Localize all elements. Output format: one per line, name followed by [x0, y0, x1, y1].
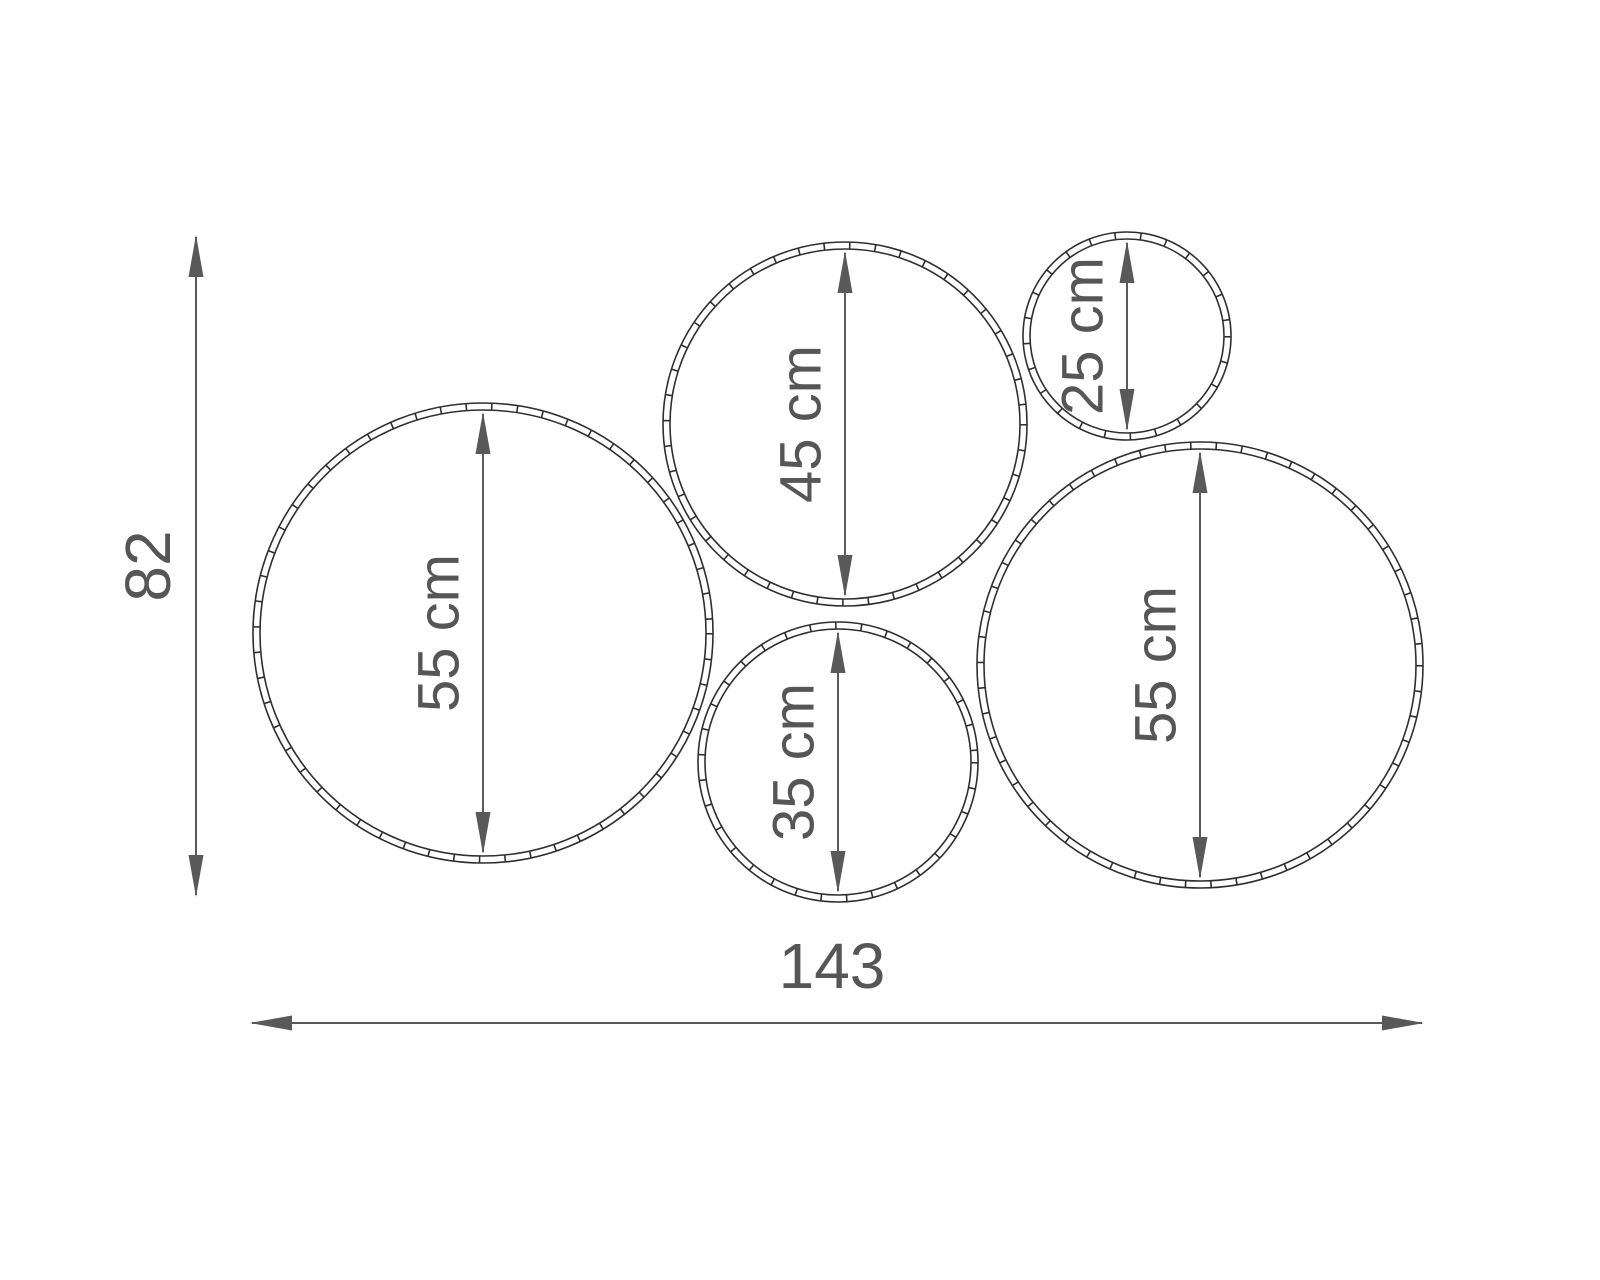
circle-25-small-label: 25 cm [1051, 257, 1116, 415]
overall-height-arrowhead-bottom [189, 855, 204, 897]
circle-35-bottom-label: 35 cm [762, 683, 827, 841]
overall-height-arrowhead-top [189, 235, 204, 277]
circle-35-bottom: 35 cm [698, 622, 978, 902]
overall-width-arrowhead-left [250, 1016, 292, 1031]
dimension-drawing-page: 55 cm45 cm25 cm35 cm55 cm82143 [0, 0, 1600, 1280]
overall-width-label: 143 [779, 930, 886, 1002]
overall-width-dimension: 143 [250, 930, 1424, 1031]
overall-width-arrowhead-right [1382, 1016, 1424, 1031]
circle-45-top-label: 45 cm [769, 345, 834, 503]
circle-35-bottom-arrowhead-top [831, 631, 846, 673]
circle-35-bottom-arrowhead-bottom [831, 851, 846, 893]
circle-55-right-arrowhead-top [1193, 451, 1208, 493]
drawing-canvas: 55 cm45 cm25 cm35 cm55 cm82143 [0, 0, 1600, 1280]
circle-25-small: 25 cm [1023, 232, 1231, 440]
circle-45-top: 45 cm [663, 242, 1027, 606]
circle-55-left-arrowhead-top [476, 412, 491, 454]
circle-55-right-arrowhead-bottom [1193, 837, 1208, 879]
circle-55-right: 55 cm [977, 442, 1423, 888]
overall-height-dimension: 82 [112, 235, 204, 897]
circle-55-left-label: 55 cm [407, 554, 472, 712]
circle-25-small-arrowhead-top [1120, 241, 1135, 283]
circle-55-left: 55 cm [253, 403, 713, 863]
circle-55-left-arrowhead-bottom [476, 812, 491, 854]
overall-height-label: 82 [112, 530, 184, 601]
circle-55-right-label: 55 cm [1124, 586, 1189, 744]
circle-25-small-arrowhead-bottom [1120, 389, 1135, 431]
circle-45-top-arrowhead-bottom [838, 555, 853, 597]
circle-45-top-arrowhead-top [838, 251, 853, 293]
